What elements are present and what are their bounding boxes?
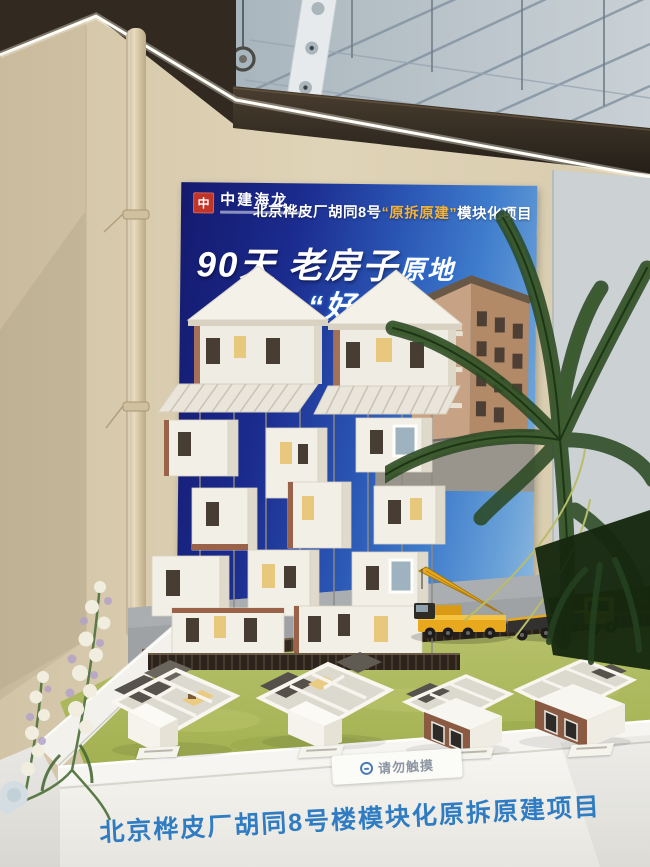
exhibition-photo: 中 中建海龙 北京桦皮厂胡同8号“原拆原建”模块化项目 90天 老房子原地 “好… (0, 0, 650, 867)
do-not-touch-icon (360, 761, 374, 775)
room-model-2 (248, 636, 398, 758)
model-label-plate (568, 743, 614, 757)
palm-plant (385, 150, 650, 670)
flower-arrangement (0, 555, 160, 825)
do-not-touch-label: 请勿触摸 (377, 755, 434, 777)
